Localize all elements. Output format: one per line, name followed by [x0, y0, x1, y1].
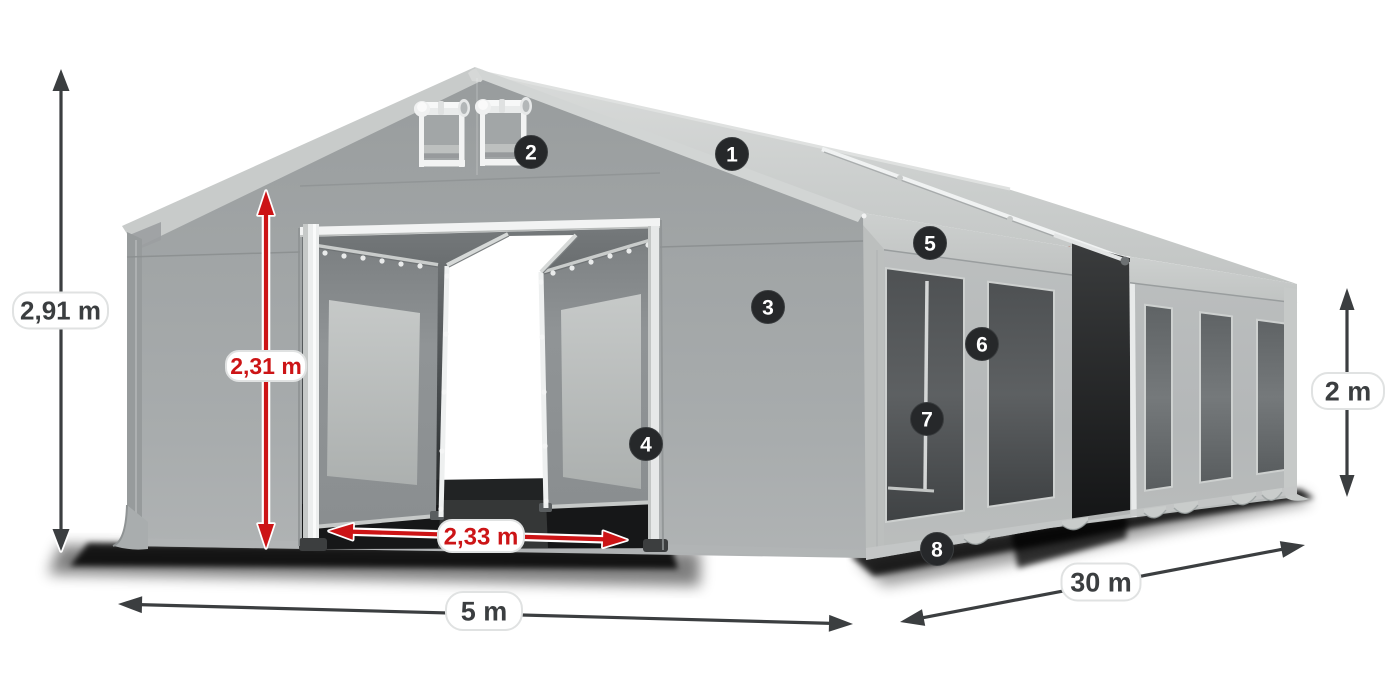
svg-text:8: 8: [931, 539, 943, 562]
svg-text:3: 3: [762, 297, 774, 320]
svg-text:5: 5: [924, 233, 936, 256]
svg-text:1: 1: [726, 144, 738, 167]
svg-text:2,91 m: 2,91 m: [20, 296, 101, 326]
svg-text:2 m: 2 m: [1325, 376, 1372, 406]
svg-text:2,31 m: 2,31 m: [230, 353, 302, 379]
svg-text:30 m: 30 m: [1070, 568, 1132, 598]
svg-text:5 m: 5 m: [461, 597, 508, 627]
svg-text:7: 7: [921, 409, 933, 432]
svg-text:4: 4: [640, 434, 652, 457]
svg-text:2,33 m: 2,33 m: [444, 523, 519, 550]
svg-text:2: 2: [525, 142, 537, 165]
svg-text:6: 6: [976, 334, 988, 357]
